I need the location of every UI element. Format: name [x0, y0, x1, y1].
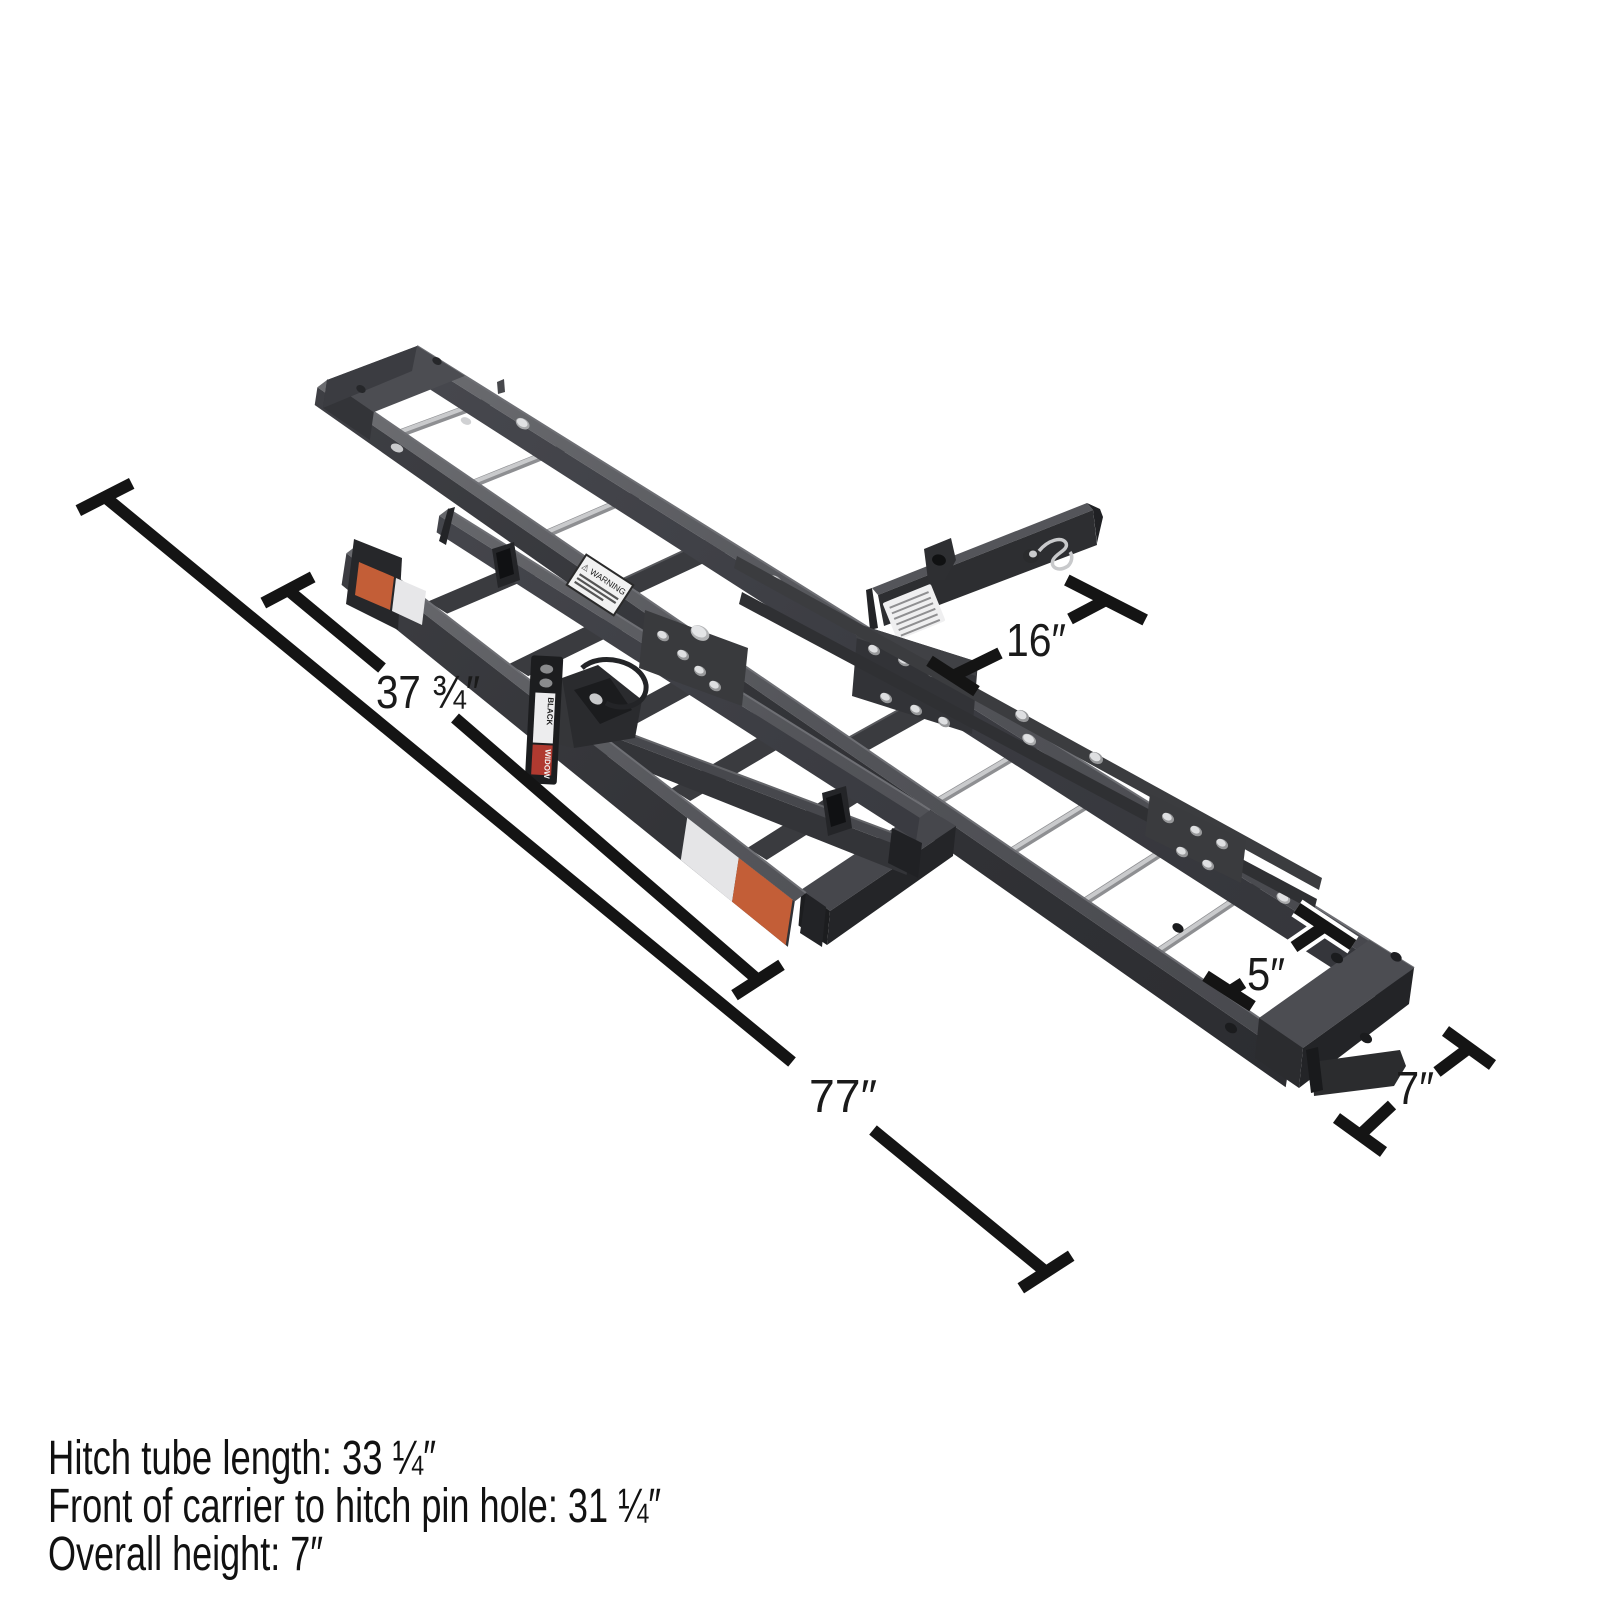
svg-text:Front of carrier to hitch pin: Front of carrier to hitch pin hole: 31 ¼…: [48, 1480, 661, 1533]
svg-text:77″: 77″: [809, 1070, 877, 1122]
svg-text:5″: 5″: [1247, 948, 1285, 1000]
svg-text:7″: 7″: [1396, 1062, 1434, 1114]
svg-text:Hitch tube length: 33 ¼″: Hitch tube length: 33 ¼″: [48, 1432, 436, 1485]
svg-text:BLACK: BLACK: [545, 697, 555, 726]
svg-text:Overall height: 7″: Overall height: 7″: [48, 1528, 323, 1581]
svg-text:16″: 16″: [1006, 614, 1066, 666]
svg-text:WIDOW: WIDOW: [542, 749, 553, 779]
svg-text:37 ¾″: 37 ¾″: [376, 666, 480, 718]
